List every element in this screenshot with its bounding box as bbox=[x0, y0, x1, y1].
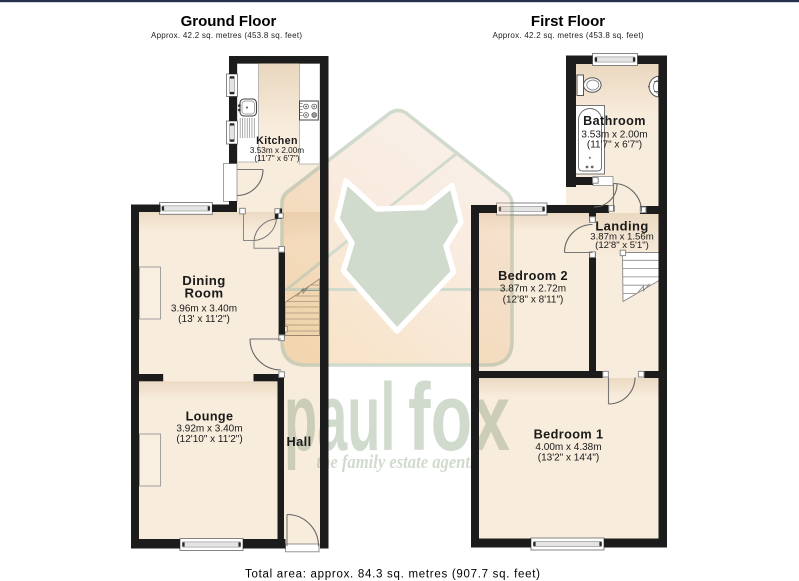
svg-text:Bathroom: Bathroom bbox=[583, 114, 646, 128]
svg-text:the family estate agents: the family estate agents bbox=[317, 453, 477, 473]
svg-text:First Floor: First Floor bbox=[531, 13, 605, 30]
svg-text:3.87m x 2.72m: 3.87m x 2.72m bbox=[500, 284, 566, 295]
svg-text:Approx. 42.2 sq. metres (453.8: Approx. 42.2 sq. metres (453.8 sq. feet) bbox=[151, 31, 302, 40]
svg-text:Bedroom 2: Bedroom 2 bbox=[498, 269, 568, 283]
svg-text:Lounge: Lounge bbox=[186, 410, 234, 424]
svg-text:(12'8" x 8'11"): (12'8" x 8'11") bbox=[503, 295, 564, 306]
svg-text:Bedroom 1: Bedroom 1 bbox=[534, 428, 604, 442]
svg-text:(11'7" x 6'7"): (11'7" x 6'7") bbox=[587, 139, 642, 150]
svg-text:Approx. 42.2 sq. metres (453.8: Approx. 42.2 sq. metres (453.8 sq. feet) bbox=[493, 31, 644, 40]
svg-text:3.96m x 3.40m: 3.96m x 3.40m bbox=[171, 304, 237, 315]
svg-text:3.92m x 3.40m: 3.92m x 3.40m bbox=[176, 424, 242, 435]
svg-text:(11'7" x 6'7"): (11'7" x 6'7") bbox=[254, 154, 299, 163]
svg-text:(13' x 11'2"): (13' x 11'2") bbox=[178, 314, 230, 325]
svg-text:Kitchen: Kitchen bbox=[256, 135, 298, 147]
svg-text:Room: Room bbox=[185, 286, 224, 301]
svg-text:4.00m x 4.38m: 4.00m x 4.38m bbox=[535, 442, 601, 453]
svg-text:Hall: Hall bbox=[286, 434, 311, 449]
svg-text:Total area: approx. 84.3 sq. m: Total area: approx. 84.3 sq. metres (907… bbox=[245, 569, 540, 581]
svg-text:Ground Floor: Ground Floor bbox=[181, 13, 277, 30]
svg-text:(12'10" x 11'2"): (12'10" x 11'2") bbox=[176, 434, 242, 445]
svg-text:(12'8" x 5'1"): (12'8" x 5'1") bbox=[595, 240, 649, 251]
svg-text:(13'2" x 14'4"): (13'2" x 14'4") bbox=[538, 453, 600, 464]
